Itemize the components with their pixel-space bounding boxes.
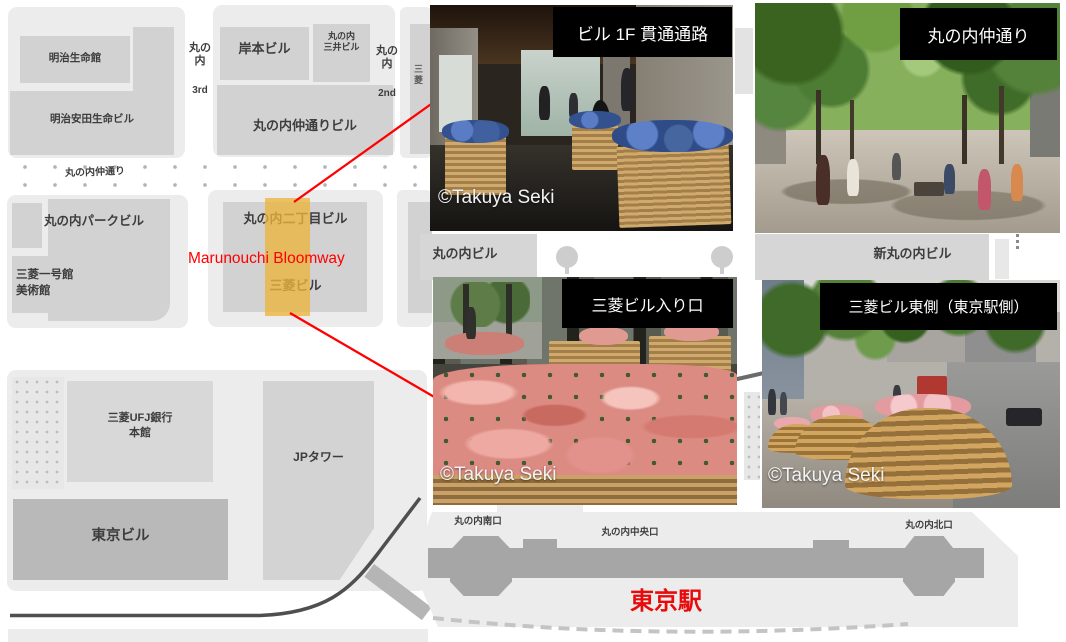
street-label-marunouchi-2nd-kanji: 丸の内 <box>376 45 398 71</box>
block-right-edge-strip <box>995 239 1009 279</box>
label-park-bldg: 丸の内パークビル <box>14 214 174 228</box>
plaza-symbol-stem <box>565 267 569 274</box>
photo4-credit: ©Takuya Seki <box>768 465 884 487</box>
photo1-credit: ©Takuya Seki <box>438 187 554 209</box>
photo2-person <box>944 164 955 194</box>
label-tokyo-bldg: 東京ビル <box>13 528 228 545</box>
label-mitsui-line2: 三井ビル <box>313 42 370 52</box>
photo3-person <box>466 307 475 339</box>
label-ufj-line1: 三菱UFJ銀行 <box>67 412 213 425</box>
photo1-person <box>621 68 633 111</box>
label-ichigokan-line2: 美術館 <box>16 285 106 298</box>
photo3-outdoor-trees <box>439 282 530 328</box>
station-north-dome <box>903 536 955 596</box>
photo3-planter-flowers <box>579 327 628 345</box>
label-nakadori-bldg: 丸の内仲通りビル <box>217 119 393 134</box>
photo2-person <box>816 155 830 206</box>
label-meiji-seimei: 明治生命館 <box>20 52 130 64</box>
label-ichigokan-line1: 三菱一号館 <box>16 269 106 282</box>
photo3-back-flowers <box>445 332 524 355</box>
photo4-caption: 三菱ビル東側（東京駅側） <box>820 283 1057 330</box>
photo4-car <box>1006 408 1042 426</box>
photo2-trunk <box>962 95 967 164</box>
street-tree-dots-row2 <box>10 182 430 188</box>
station-roof-bump <box>813 540 849 550</box>
label-marunouchi-bldg: 丸の内ビル <box>415 247 515 262</box>
plaza-symbol-icon <box>711 246 733 268</box>
plaza-symbol-stem <box>720 267 724 274</box>
photo1-planter <box>616 143 731 228</box>
hatched-area <box>12 377 64 489</box>
hatch-gap-strip <box>744 392 760 480</box>
label-mitsui-line1: 丸の内 <box>313 31 370 41</box>
photo2-trunk <box>816 90 821 164</box>
label-north-exit: 丸の内北口 <box>893 521 965 532</box>
photo1-blue-flowers <box>569 111 621 129</box>
street-label-marunouchi-3rd-num: 3rd <box>187 85 213 97</box>
station-south-dome <box>450 536 512 596</box>
photo2-person <box>1011 164 1023 201</box>
photo2-trunk <box>999 86 1004 164</box>
photo2-trunk <box>850 100 854 164</box>
label-central-exit: 丸の内中央口 <box>592 528 668 539</box>
photo1-planter <box>572 125 617 170</box>
photo2-person <box>892 153 901 181</box>
photo3-credit: ©Takuya Seki <box>440 464 556 486</box>
photo1-blue-flowers <box>612 120 733 152</box>
photo1-person <box>539 86 550 120</box>
photo3-caption: 三菱ビル入り口 <box>562 279 733 328</box>
street-label-marunouchi-3rd-kanji: 丸の内 <box>189 42 211 68</box>
photo2-person <box>978 169 992 210</box>
photo2-caption: 丸の内仲通り <box>900 8 1057 60</box>
label-meiji-yasuda: 明治安田生命ビル <box>10 113 174 125</box>
bottom-light-band <box>8 629 428 642</box>
vertical-dotted-mark <box>1016 234 1019 251</box>
photo4-person <box>780 392 787 415</box>
label-jp-tower: JPタワー <box>263 451 374 465</box>
label-shin-marunouchi: 新丸の内ビル <box>845 247 980 262</box>
building-top-right-sliver <box>410 24 432 154</box>
bloomway-annotation: Marunouchi Bloomway <box>188 250 398 268</box>
marunouchi-bloomway-map: 明治生命館 明治安田生命ビル 丸の内 3rd 岸本ビル 丸の内 三井ビル 丸の内… <box>0 0 1066 642</box>
street-label-nakadori: 丸の内仲通り <box>52 166 138 180</box>
photo4-person <box>768 389 776 414</box>
photo3-flower-mass <box>433 364 737 478</box>
label-ufj-line2: 本館 <box>67 427 213 440</box>
plaza-symbol-icon <box>556 246 578 268</box>
photo2-person <box>847 159 859 196</box>
street-label-marunouchi-2nd-num: 2nd <box>374 88 400 100</box>
label-south-exit: 丸の内南口 <box>442 517 514 528</box>
label-tokyo-station: 東京駅 <box>630 581 730 616</box>
building-jp-tower <box>263 381 374 580</box>
station-roof-bump <box>523 539 557 550</box>
photo1-caption: ビル 1F 貫通通路 <box>553 7 732 57</box>
photo2-bench <box>914 182 945 196</box>
label-partial-mitsubishi: 三菱 <box>412 64 425 86</box>
photo1-blue-flowers <box>442 120 509 143</box>
road-fragment <box>733 373 764 380</box>
label-kishimoto: 岸本ビル <box>220 42 309 57</box>
block-top-gap-strip <box>735 28 753 94</box>
station-top-tab <box>497 504 583 513</box>
